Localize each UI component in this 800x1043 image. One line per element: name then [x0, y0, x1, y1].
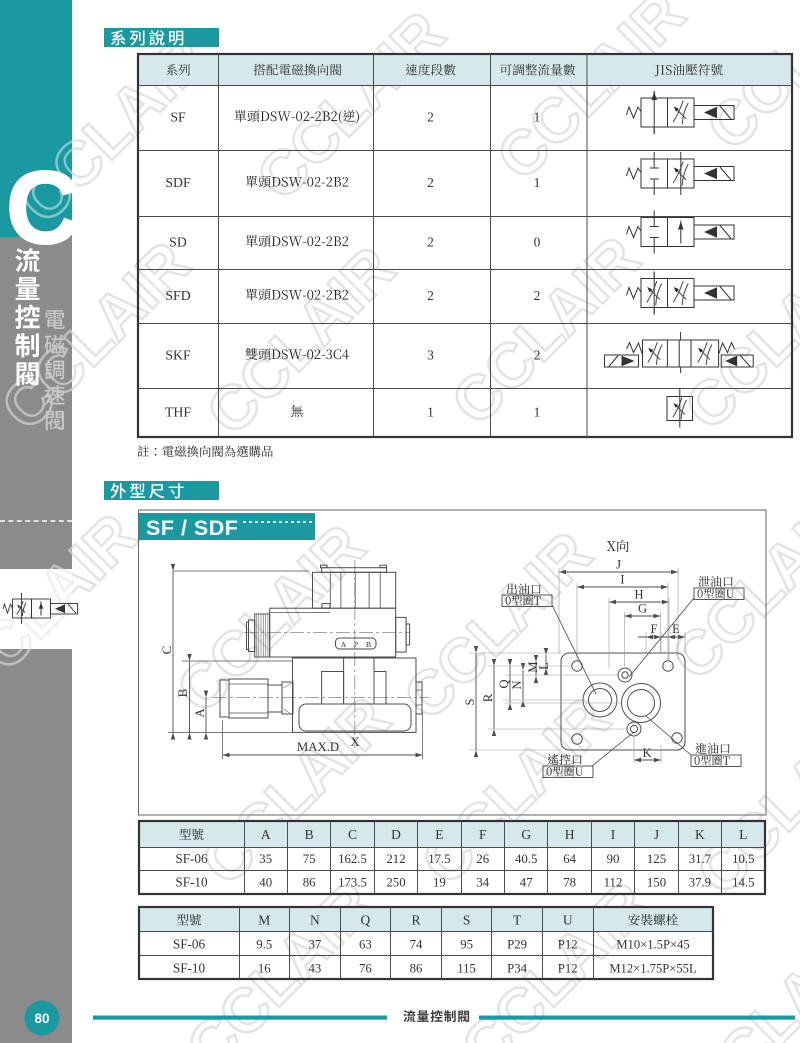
svg-text:H: H [565, 827, 575, 842]
svg-text:9.5: 9.5 [256, 938, 272, 952]
svg-text:250: 250 [386, 876, 405, 890]
svg-text:173.5: 173.5 [338, 876, 367, 890]
svg-text:1: 1 [427, 405, 434, 420]
svg-text:G: G [521, 827, 531, 842]
svg-text:M: M [258, 913, 270, 928]
svg-text:64: 64 [563, 852, 576, 866]
svg-text:1: 1 [534, 405, 541, 420]
svg-text:E: E [435, 827, 443, 842]
svg-text:212: 212 [386, 852, 405, 866]
svg-text:X: X [350, 735, 360, 749]
svg-text:M10×1.5P×45: M10×1.5P×45 [616, 938, 689, 952]
svg-text:90: 90 [607, 852, 620, 866]
svg-text:76: 76 [359, 962, 372, 976]
svg-text:86: 86 [303, 876, 316, 890]
svg-text:19: 19 [433, 876, 446, 890]
svg-text:35: 35 [259, 852, 272, 866]
svg-text:B: B [305, 827, 314, 842]
svg-text:U: U [563, 913, 573, 928]
svg-text:D: D [391, 827, 401, 842]
svg-text:B: B [175, 688, 190, 697]
svg-text:F: F [479, 827, 487, 842]
svg-text:47: 47 [520, 876, 533, 890]
svg-text:14.5: 14.5 [732, 876, 754, 890]
svg-text:P: P [354, 640, 358, 649]
svg-text:R: R [481, 693, 495, 702]
svg-text:125: 125 [647, 852, 666, 866]
svg-text:P29: P29 [507, 938, 527, 952]
svg-text:G: G [638, 602, 647, 616]
svg-text:2: 2 [427, 110, 434, 125]
svg-text:SFD: SFD [165, 288, 190, 303]
svg-text:40: 40 [259, 876, 272, 890]
svg-text:40.5: 40.5 [515, 852, 537, 866]
svg-text:SF-10: SF-10 [173, 961, 206, 976]
svg-text:1: 1 [534, 110, 541, 125]
svg-text:L: L [739, 827, 747, 842]
svg-text:37: 37 [309, 938, 322, 952]
svg-text:K: K [695, 827, 705, 842]
svg-text:34: 34 [476, 876, 489, 890]
svg-text:I: I [620, 573, 624, 587]
svg-text:26: 26 [476, 852, 489, 866]
svg-text:S: S [463, 698, 477, 705]
svg-text:17.5: 17.5 [428, 852, 450, 866]
svg-text:2: 2 [427, 235, 434, 250]
svg-text:SKF: SKF [165, 348, 191, 363]
svg-text:SF-06: SF-06 [173, 937, 206, 952]
svg-text:Q: Q [361, 913, 371, 928]
svg-text:T: T [513, 913, 522, 928]
svg-text:I: I [611, 827, 616, 842]
svg-text:75: 75 [303, 852, 316, 866]
svg-text:112: 112 [604, 876, 623, 890]
svg-text:74: 74 [410, 938, 423, 952]
svg-text:0: 0 [534, 235, 541, 250]
svg-text:E: E [672, 622, 680, 636]
svg-text:A: A [261, 827, 271, 842]
svg-text:2: 2 [534, 348, 541, 363]
svg-text:150: 150 [647, 876, 666, 890]
svg-text:R: R [411, 913, 420, 928]
svg-text:1: 1 [534, 175, 541, 190]
svg-text:2: 2 [534, 288, 541, 303]
svg-text:THF: THF [165, 405, 191, 420]
svg-text:MAX.D: MAX.D [297, 740, 339, 754]
svg-text:N: N [310, 913, 320, 928]
svg-text:K: K [642, 746, 651, 760]
svg-text:P12: P12 [558, 962, 578, 976]
svg-text:C: C [6, 150, 80, 265]
svg-text:S: S [463, 913, 471, 928]
svg-text:P12: P12 [558, 938, 578, 952]
svg-text:16: 16 [258, 962, 271, 976]
svg-text:115: 115 [457, 962, 476, 976]
svg-text:SF-06: SF-06 [175, 851, 208, 866]
svg-text:43: 43 [309, 962, 322, 976]
svg-text:N: N [510, 680, 524, 689]
svg-text:162.5: 162.5 [338, 852, 367, 866]
svg-text:SD: SD [169, 235, 187, 250]
svg-text:J: J [654, 827, 659, 842]
svg-text:3: 3 [427, 348, 434, 363]
svg-text:SF / SDF: SF / SDF [146, 516, 238, 540]
svg-text:2: 2 [427, 175, 434, 190]
svg-text:A: A [341, 640, 347, 649]
svg-text:37.9: 37.9 [689, 876, 711, 890]
svg-text:SDF: SDF [165, 175, 191, 190]
svg-text:86: 86 [410, 962, 423, 976]
svg-text:B: B [366, 640, 371, 649]
svg-text:80: 80 [34, 1011, 49, 1026]
svg-text:M12×1.75P×55L: M12×1.75P×55L [609, 962, 696, 976]
svg-text:10.5: 10.5 [732, 852, 754, 866]
svg-text:95: 95 [460, 938, 473, 952]
svg-text:SF: SF [170, 110, 186, 125]
svg-text:SF-10: SF-10 [175, 875, 208, 890]
svg-text:31.7: 31.7 [689, 852, 712, 866]
svg-text:F: F [651, 622, 658, 636]
svg-text:Q: Q [497, 679, 511, 688]
svg-text:P34: P34 [507, 962, 528, 976]
svg-text:J: J [616, 558, 621, 572]
svg-text:78: 78 [563, 876, 576, 890]
svg-text:A: A [192, 708, 207, 718]
svg-text:H: H [634, 588, 643, 602]
svg-text:63: 63 [359, 938, 372, 952]
svg-text:C: C [159, 646, 174, 655]
svg-text:2: 2 [427, 288, 434, 303]
svg-text:C: C [348, 827, 357, 842]
